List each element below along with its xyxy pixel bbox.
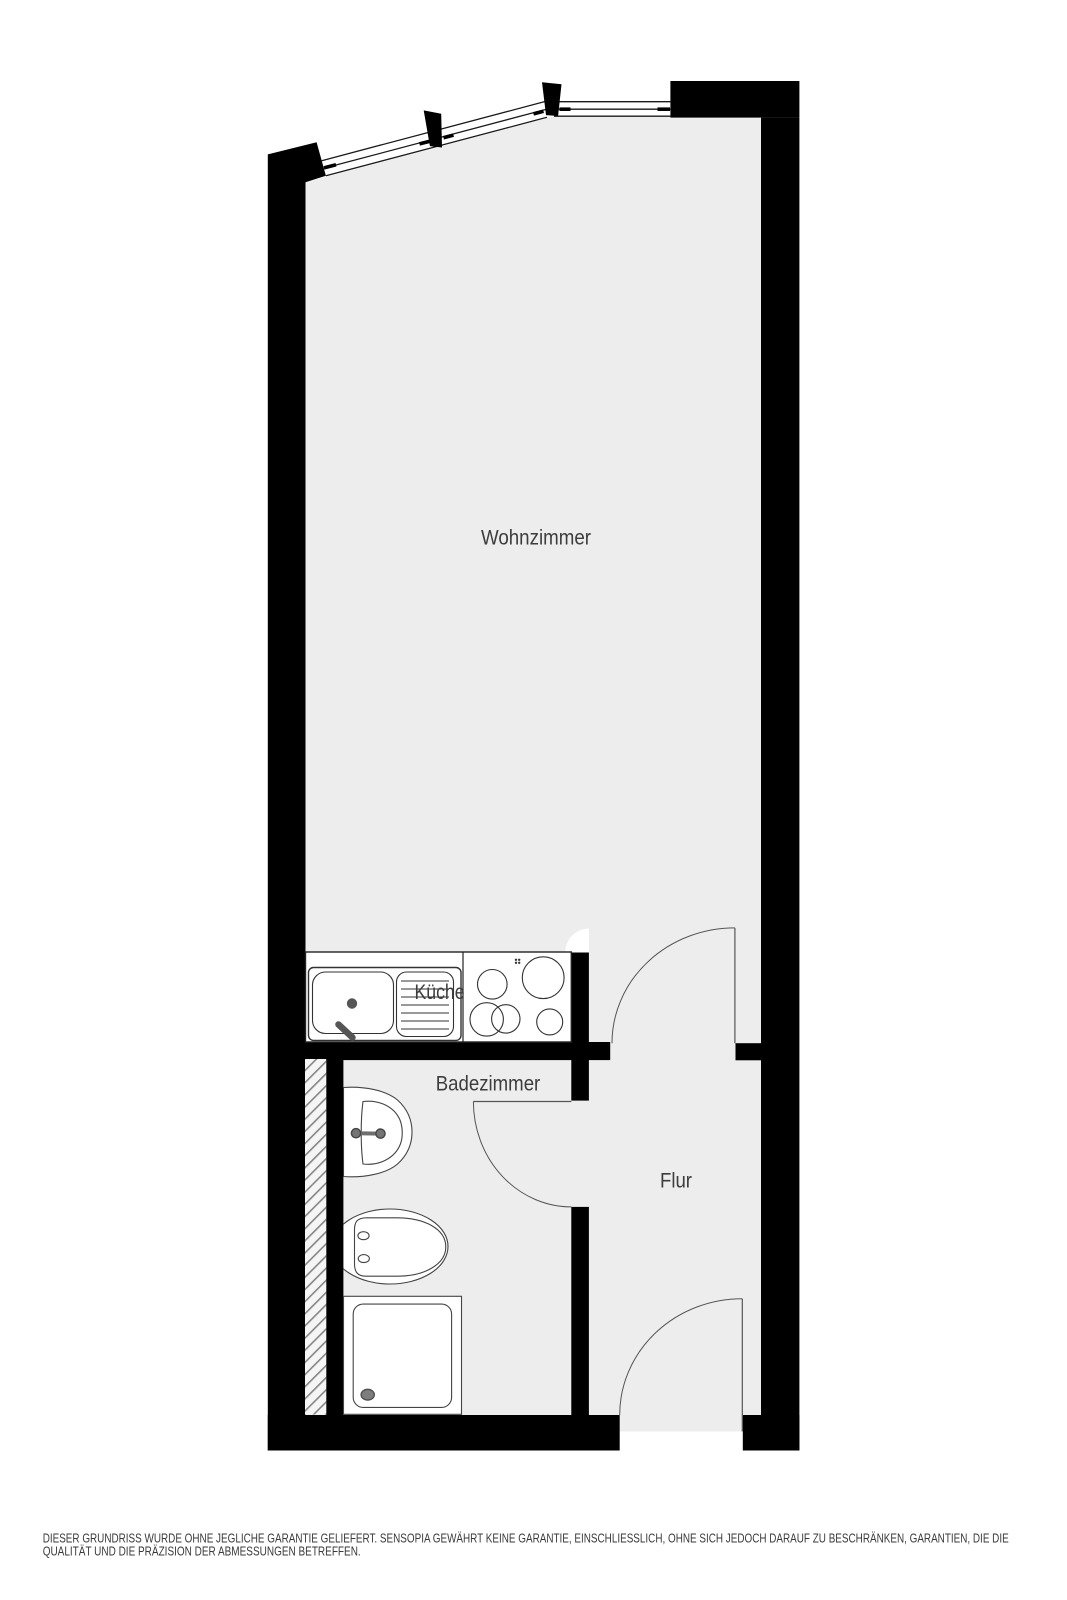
- svg-text:Wohnzimmer: Wohnzimmer: [481, 527, 591, 550]
- svg-text:Badezimmer: Badezimmer: [436, 1073, 541, 1096]
- svg-text:Küche: Küche: [415, 981, 465, 1004]
- svg-text:Flur: Flur: [660, 1170, 692, 1193]
- svg-text:QUALITÄT UND DIE PRÄZISION DER: QUALITÄT UND DIE PRÄZISION DER ABMESSUNG…: [43, 1544, 361, 1558]
- svg-text:DIESER GRUNDRISS WURDE OHNE JE: DIESER GRUNDRISS WURDE OHNE JEGLICHE GAR…: [43, 1532, 1009, 1546]
